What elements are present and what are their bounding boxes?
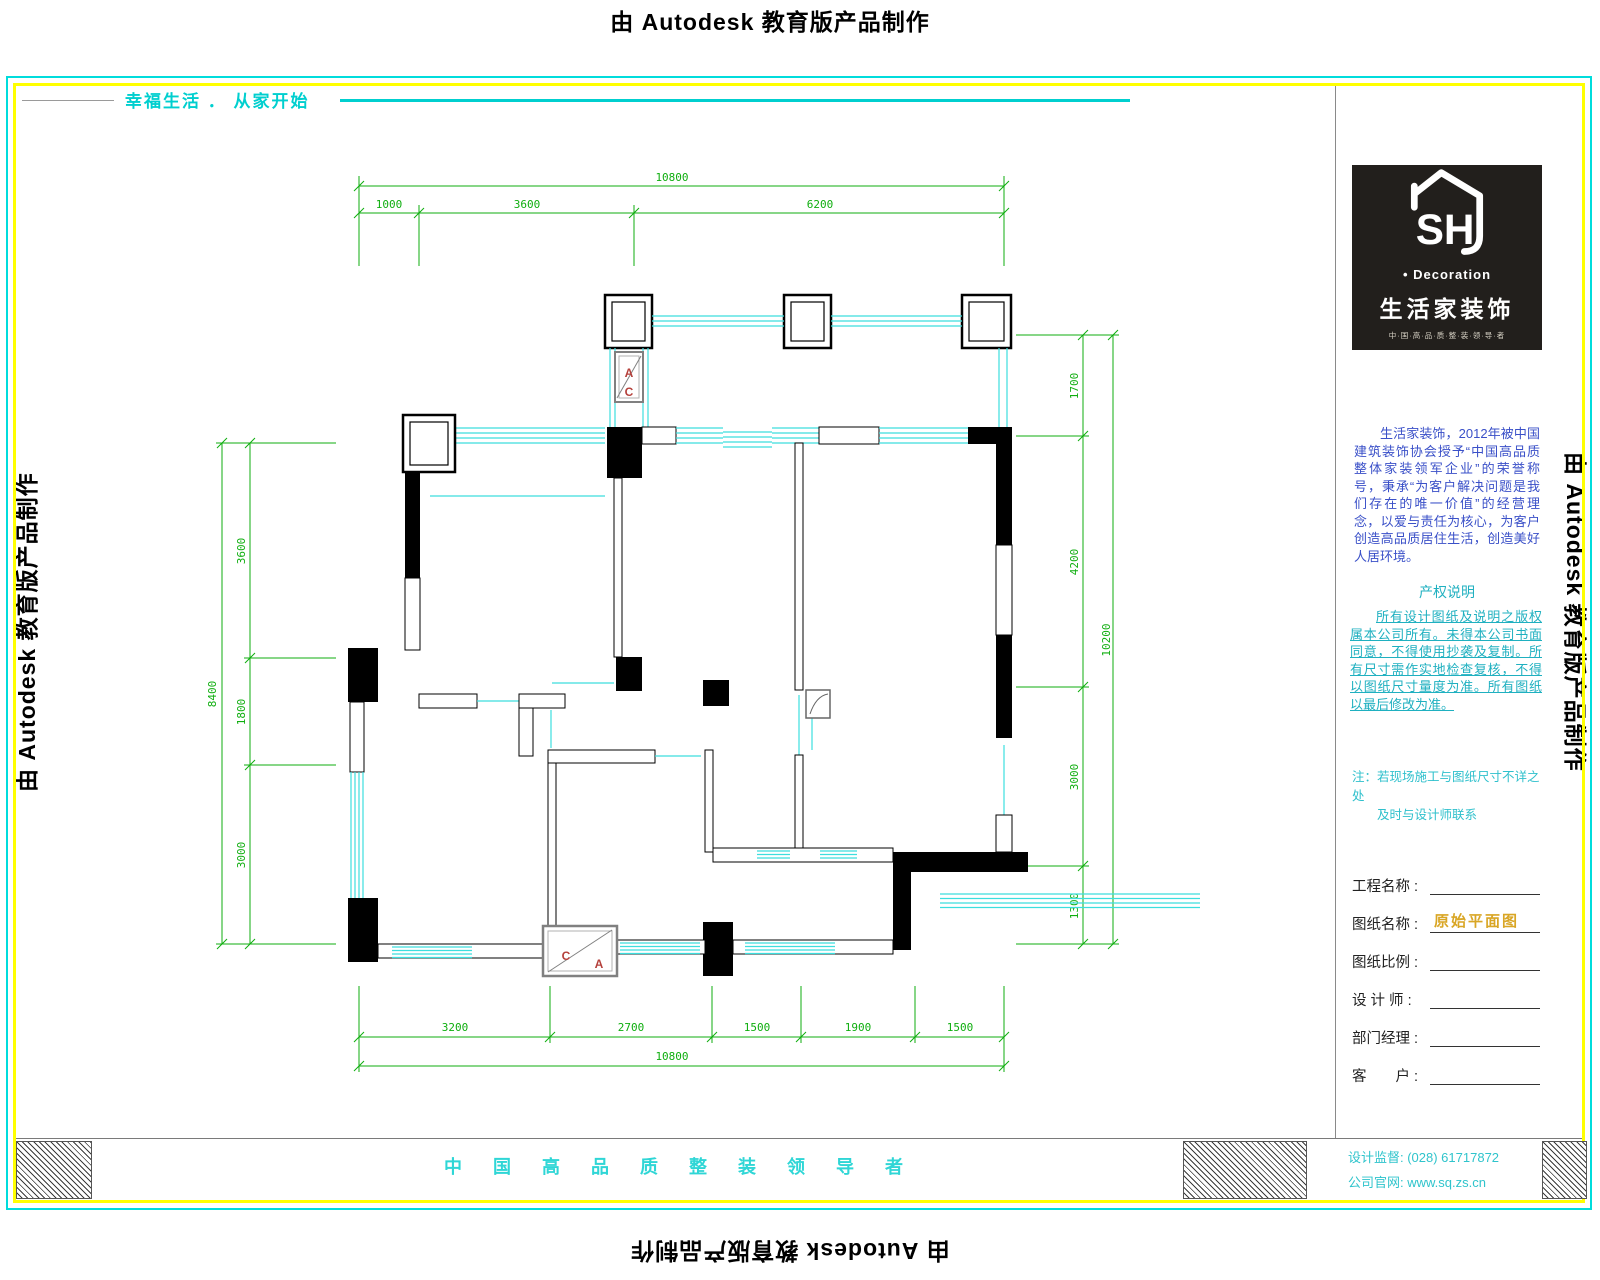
- dimensions-top: 10800 1000 3600 6200: [354, 171, 1009, 266]
- svg-text:2700: 2700: [618, 1021, 645, 1034]
- svg-text:1300: 1300: [1068, 893, 1081, 920]
- svg-text:1500: 1500: [744, 1021, 771, 1034]
- svg-text:3000: 3000: [1068, 764, 1081, 791]
- svg-text:A: A: [595, 957, 604, 971]
- balcony-columns: [605, 295, 1011, 427]
- dim-top-total: 10800: [655, 171, 688, 184]
- svg-text:1000: 1000: [376, 198, 403, 211]
- drawing-sheet: 由 Autodesk 教育版产品制作 由 Autodesk 教育版产品制作 由 …: [0, 0, 1600, 1280]
- ac-unit-bottom: C A: [543, 926, 617, 976]
- svg-text:A: A: [625, 366, 634, 380]
- svg-text:3600: 3600: [235, 538, 248, 565]
- svg-text:1500: 1500: [947, 1021, 974, 1034]
- svg-text:3000: 3000: [235, 842, 248, 869]
- dim-bottom-total: 10800: [655, 1050, 688, 1063]
- dimensions-right: 1700 4200 3000 1300 10200: [1016, 330, 1119, 949]
- dimensions-left: 8400 3600 1800 3000: [206, 438, 336, 949]
- svg-text:C: C: [562, 949, 571, 963]
- svg-text:4200: 4200: [1068, 549, 1081, 576]
- svg-text:1800: 1800: [235, 699, 248, 726]
- dim-right-total: 10200: [1100, 623, 1113, 656]
- floor-plan: 10800 1000 3600 6200 3200 2700 1500 1900…: [0, 0, 1600, 1280]
- svg-text:1900: 1900: [845, 1021, 872, 1034]
- svg-text:3600: 3600: [514, 198, 541, 211]
- svg-text:C: C: [625, 385, 634, 399]
- dimensions-bottom: 3200 2700 1500 1900 1500 10800: [354, 986, 1009, 1072]
- ac-unit-top: A C: [615, 352, 643, 402]
- flue-symbol: [806, 690, 830, 718]
- dim-left-total: 8400: [206, 681, 219, 708]
- svg-text:6200: 6200: [807, 198, 834, 211]
- svg-text:1700: 1700: [1068, 373, 1081, 400]
- svg-text:3200: 3200: [442, 1021, 469, 1034]
- interior-walls: [419, 443, 893, 940]
